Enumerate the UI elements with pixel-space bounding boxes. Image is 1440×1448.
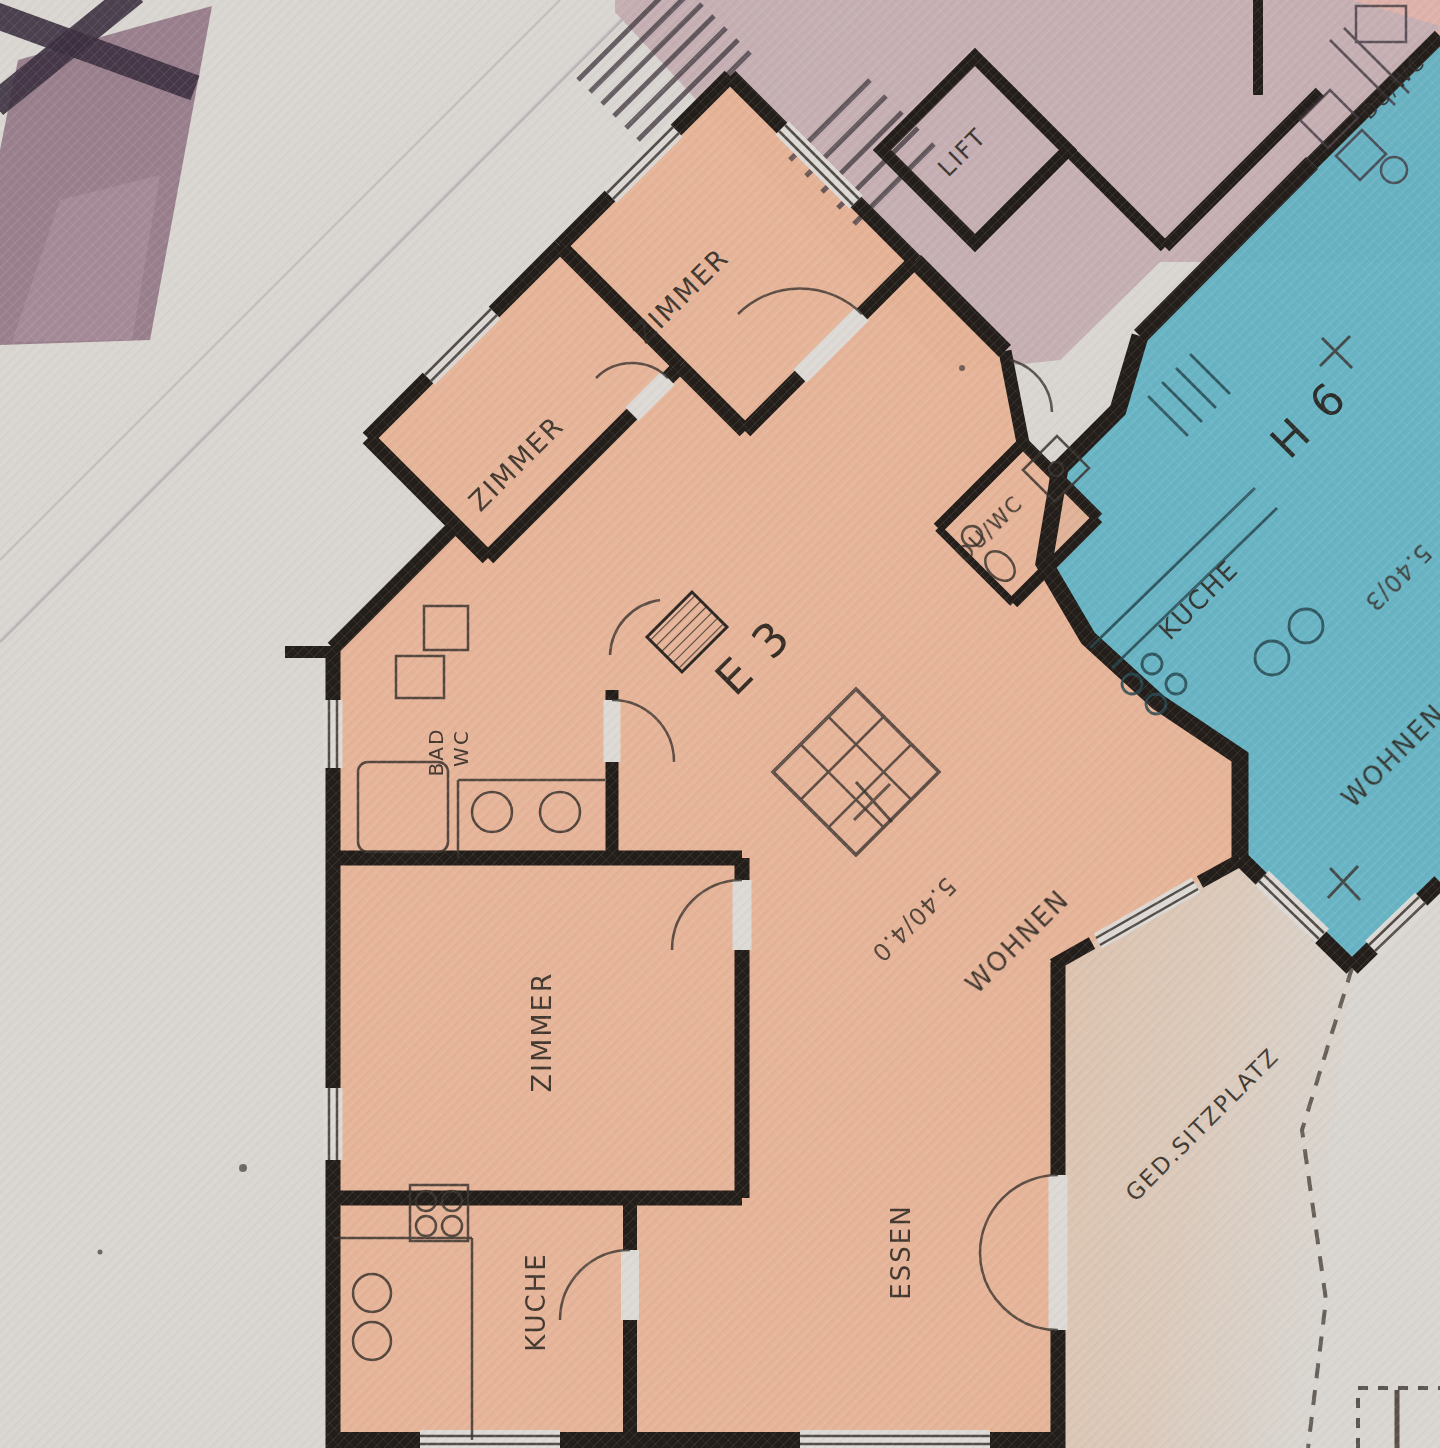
floor-plan-scan: LIFT ZIMMER ZIMMER DU/WC E 3 H 6 KUCHE 5… bbox=[0, 0, 1440, 1448]
floor-plan-drawing: LIFT ZIMMER ZIMMER DU/WC E 3 H 6 KUCHE 5… bbox=[0, 0, 1440, 1448]
paper-texture-overlay-2 bbox=[0, 0, 1440, 1448]
